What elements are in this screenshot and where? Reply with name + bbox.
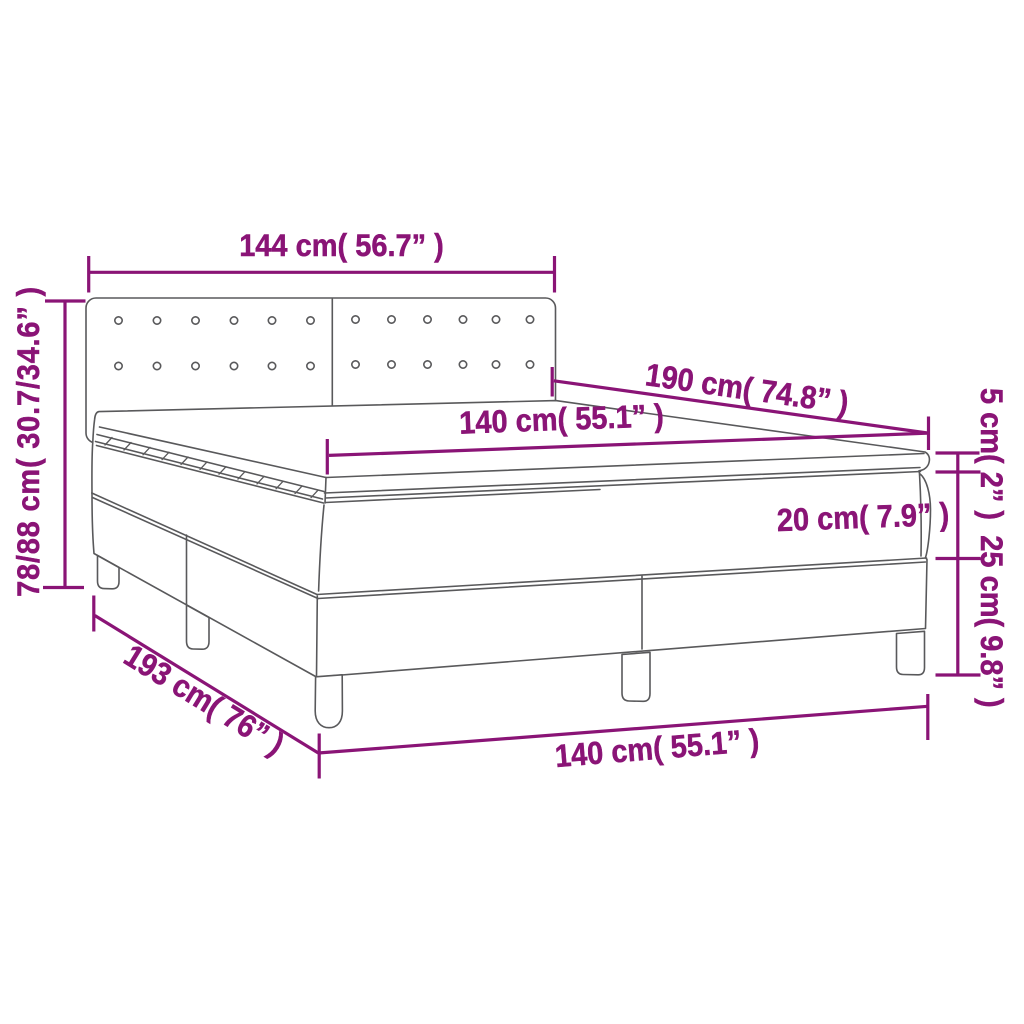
svg-text:25 cm( 9.8” ): 25 cm( 9.8” ) bbox=[974, 535, 1010, 707]
svg-text:78/88 cm( 30.7/34.6” ): 78/88 cm( 30.7/34.6” ) bbox=[11, 286, 47, 597]
svg-text:144 cm( 56.7” ): 144 cm( 56.7” ) bbox=[239, 228, 444, 264]
svg-text:140 cm( 55.1” ): 140 cm( 55.1” ) bbox=[459, 398, 665, 441]
svg-text:20 cm( 7.9” ): 20 cm( 7.9” ) bbox=[776, 497, 950, 539]
svg-text:5 cm( 2” ): 5 cm( 2” ) bbox=[974, 388, 1010, 520]
